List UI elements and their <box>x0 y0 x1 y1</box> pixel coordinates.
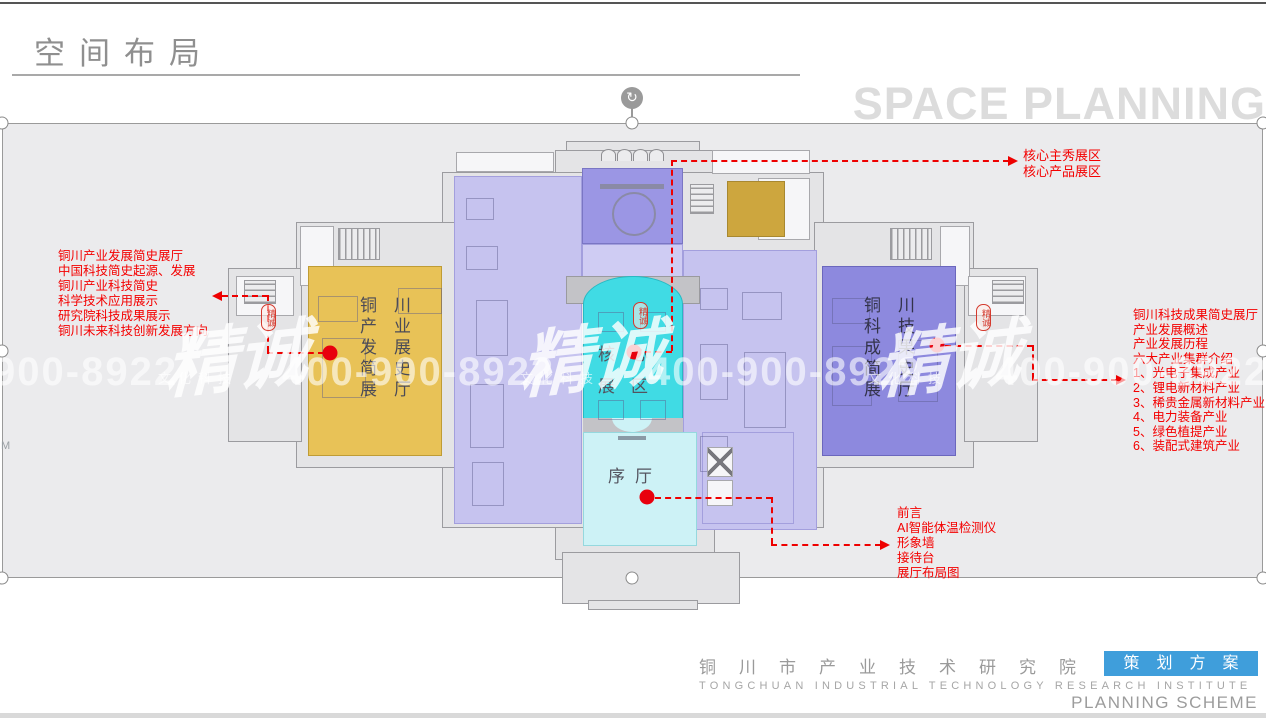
zone-gold-room <box>727 181 785 237</box>
canopy-arc <box>601 149 616 161</box>
stairs <box>244 280 276 304</box>
foyer-desk <box>618 436 646 440</box>
canopy-arc <box>633 149 648 161</box>
stairs <box>690 184 714 214</box>
annotation-bottom-right: 前言 AI智能体温检测仪 形象墙 接待台 展厅布局图 <box>897 506 996 581</box>
brand-seal: 精诚 <box>976 304 991 331</box>
marker-dot-core <box>627 345 642 360</box>
resize-handle-bottom-center[interactable] <box>626 572 639 585</box>
annotation-top-right: 核心主秀展区 核心产品展区 <box>1023 148 1101 180</box>
title-underline <box>12 74 800 76</box>
page-title: 空间布局 <box>34 28 214 73</box>
stairs <box>890 228 932 260</box>
canopy-arc <box>617 149 632 161</box>
resize-handle-top-right[interactable] <box>1257 117 1266 130</box>
resize-handle-bottom-right[interactable] <box>1257 572 1266 585</box>
zone-label-left-col2: 川业展史厅 <box>392 296 409 401</box>
bottom-steps <box>588 600 698 610</box>
annotation-right: 铜川科技成果简史展厅 产业发展概述 产业发展历程 六大产业集群介绍 1、光电子集… <box>1133 308 1265 454</box>
zone-label-right-col1: 铜科成简展 <box>862 296 879 401</box>
stairs <box>338 228 380 260</box>
brand-seal: 精诚 <box>261 304 276 331</box>
watermark-m: M <box>1 440 10 452</box>
brand-seal: 精诚 <box>633 302 648 329</box>
stage-circle <box>612 192 656 236</box>
bottom-bar <box>0 713 1266 718</box>
zone-foyer <box>583 432 697 546</box>
room <box>456 152 554 172</box>
marker-dot-violet <box>930 338 945 353</box>
footer-org-en: TONGCHUAN INDUSTRIAL TECHNOLOGY RESEARCH… <box>699 680 1251 692</box>
top-rule <box>0 2 1266 4</box>
footer-scheme-en: PLANNING SCHEME <box>1071 693 1258 713</box>
marker-dot-foyer <box>640 490 655 505</box>
room <box>712 150 810 174</box>
rotate-handle-icon[interactable]: ↻ <box>621 87 643 109</box>
resize-handle-mid-right[interactable] <box>1257 345 1266 358</box>
stairs <box>992 280 1024 304</box>
footer-org-cn: 铜川市产业技术研究院 <box>699 653 1099 678</box>
resize-handle-top-center[interactable] <box>626 117 639 130</box>
zone-label-foyer: 序厅 <box>608 462 662 487</box>
marker-dot-gold <box>323 346 338 361</box>
zone-label-left-col1: 铜产发简展 <box>358 296 375 401</box>
resize-handle-bottom-left[interactable] <box>0 572 9 585</box>
zone-label-right-col2: 川技果史厅 <box>896 296 913 401</box>
elevator <box>707 447 733 477</box>
stage-bar <box>600 184 664 189</box>
footer-badge: 策划方案 <box>1104 651 1258 676</box>
slide-editor-canvas: 空间布局 SPACE PLANNING <box>0 0 1266 719</box>
annotation-left: 铜川产业发展简史展厅 中国科技简史起源、发展 铜川产业科技简史 科学技术应用展示… <box>58 249 208 339</box>
zone-label-core-2: 展区 <box>598 372 664 397</box>
canopy-arc <box>649 149 664 161</box>
bottom-canopy <box>562 552 740 604</box>
shaft <box>707 480 733 506</box>
